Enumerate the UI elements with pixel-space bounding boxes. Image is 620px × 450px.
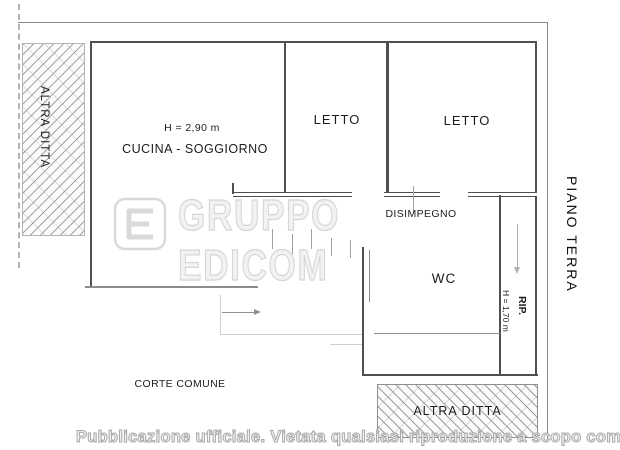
storage-label: RIP.: [516, 296, 528, 342]
wall-hallway-top-3: [468, 192, 537, 197]
floor-plan: ALTRA DITTA H = 2,90 m CUCINA - SOGGIORN…: [0, 0, 620, 450]
bedroom2-label: LETTO: [432, 113, 502, 128]
wall-hallway-top-2: [384, 192, 440, 197]
ceiling-height-storage-label: H = 1,70 m: [501, 290, 511, 352]
outer-wall-top: [18, 22, 548, 23]
courtyard-label: CORTE COMUNE: [130, 378, 230, 390]
watermark-text: GRUPPO EDICOM: [178, 191, 340, 291]
storage-arrow-head-icon: [514, 267, 520, 274]
entrance-arrow-head-icon: [254, 309, 261, 315]
altra-ditta-left-label: ALTRA DITTA: [38, 86, 50, 190]
wc-label: WC: [423, 271, 465, 286]
passage-line-vertical: [220, 295, 221, 335]
bedroom1-label: LETTO: [302, 112, 372, 127]
wall-right-inner: [535, 41, 537, 375]
wall-bottom-outer: [362, 374, 538, 376]
wall-bedrooms-divider: [386, 41, 389, 195]
wall-kitchen-left: [90, 41, 92, 288]
wall-top: [92, 41, 537, 43]
altra-ditta-bottom-label: ALTRA DITTA: [413, 404, 501, 418]
boundary-dashed-left: [18, 4, 20, 268]
wall-wc-bottom-inner: [374, 333, 500, 334]
outer-wall-right: [547, 22, 548, 440]
ceiling-height-main-label: H = 2,90 m: [127, 122, 257, 134]
hatch-area-left: [22, 43, 85, 236]
storage-arrow-icon: [517, 224, 518, 268]
wall-bedroom1-left: [284, 41, 286, 195]
hallway-label: DISIMPEGNO: [377, 208, 465, 220]
footer-disclaimer: Pubblicazione ufficiale. Vietata qualsia…: [76, 427, 620, 447]
floor-name-label: PIANO TERRA: [564, 176, 580, 316]
door-tick-5: [350, 240, 351, 258]
wc-door-leaf: [369, 250, 370, 302]
passage-line-horizontal: [220, 334, 363, 335]
passage-line-stub: [330, 344, 362, 345]
edicom-logo-icon: [112, 196, 168, 252]
entrance-arrow-icon: [222, 312, 254, 313]
wall-wc-left: [362, 247, 364, 375]
kitchen-living-label: CUCINA - SOGGIORNO: [105, 142, 285, 156]
